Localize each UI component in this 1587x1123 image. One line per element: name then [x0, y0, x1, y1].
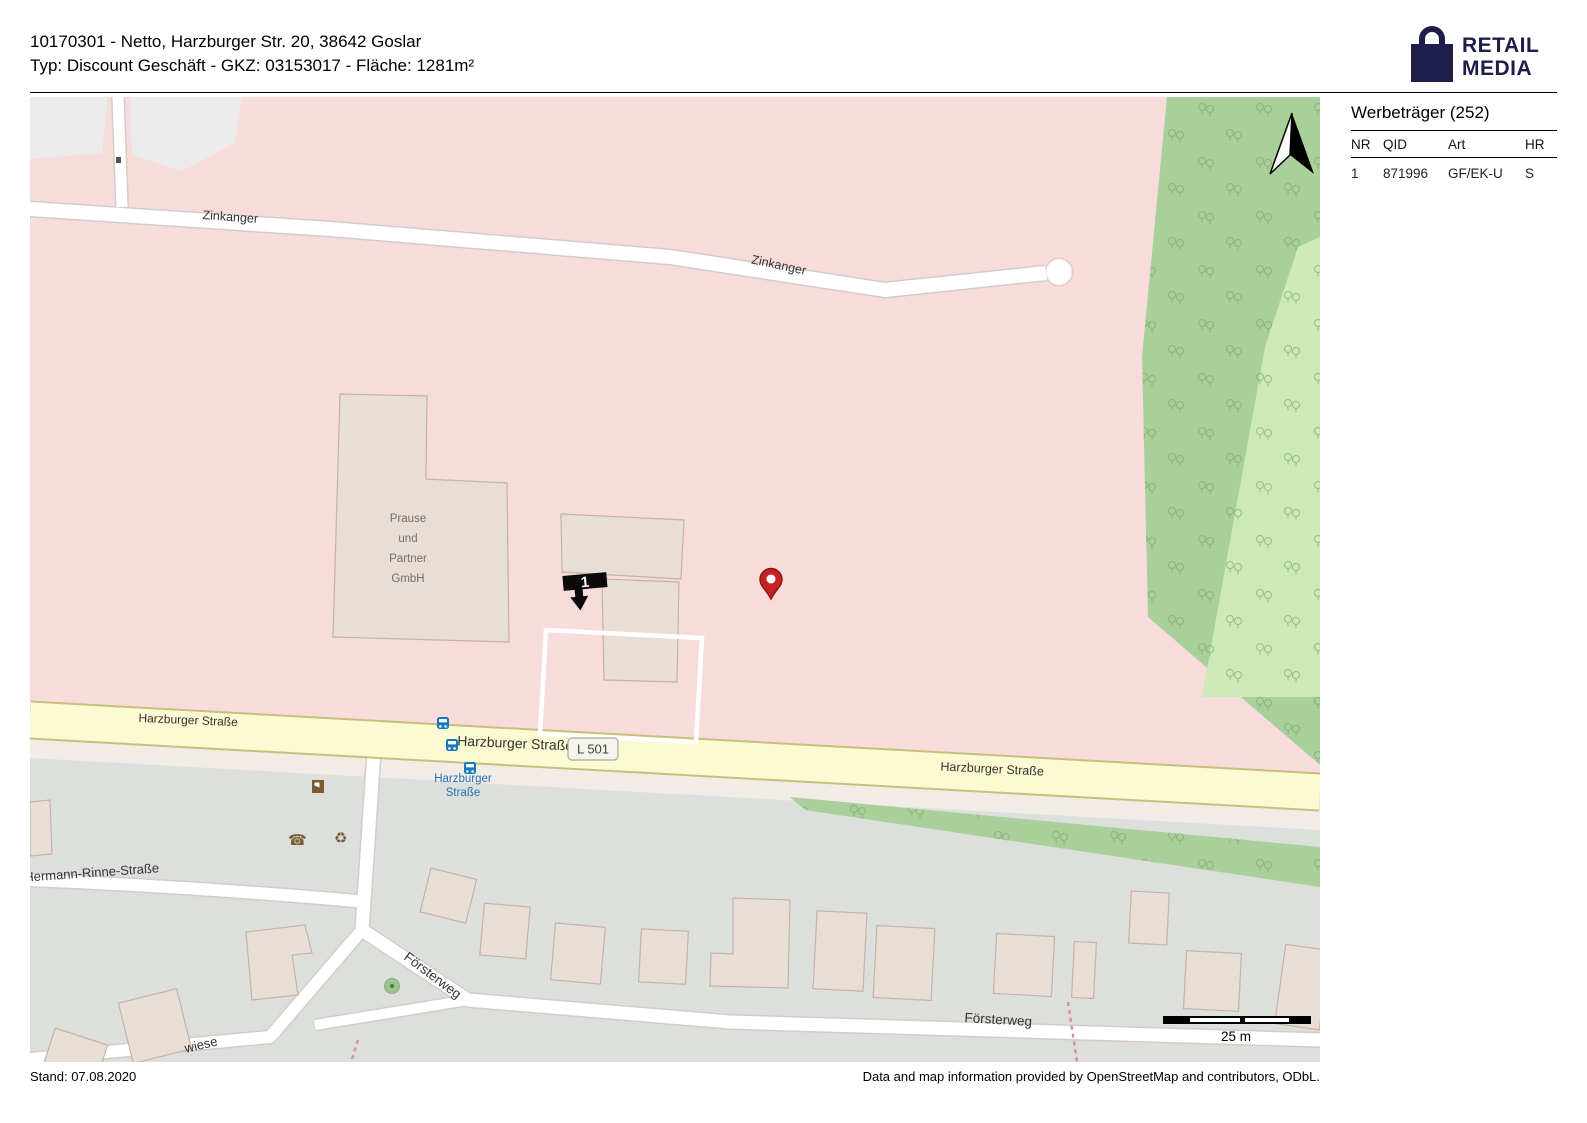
- shopping-bag-icon: [1408, 24, 1456, 89]
- werbetraeger-panel: Werbeträger (252) NR QID Art HR 1 871996…: [1351, 103, 1557, 181]
- map-canvas: Zinkanger Zinkanger Harzburger Straße Ha…: [30, 97, 1320, 1062]
- building: [639, 929, 689, 984]
- table-row: 1 871996 GF/EK-U S: [1351, 158, 1557, 181]
- svg-text:Straße: Straße: [446, 787, 481, 799]
- header-divider: [30, 92, 1557, 93]
- ticket-machine-icon: [312, 780, 324, 793]
- svg-text:und: und: [398, 533, 417, 545]
- cell-art: GF/EK-U: [1448, 166, 1525, 181]
- retail-media-logo: RETAIL MEDIA: [1408, 24, 1539, 89]
- turning-circle: [1047, 260, 1072, 285]
- svg-text:Partner: Partner: [389, 553, 427, 565]
- logo-wordmark: RETAIL MEDIA: [1462, 34, 1539, 80]
- tree-icon: [385, 979, 400, 994]
- col-nr: NR: [1351, 137, 1383, 152]
- cell-hr: S: [1525, 166, 1555, 181]
- svg-text:Harzburger: Harzburger: [434, 773, 492, 785]
- store-subtitle: Typ: Discount Geschäft - GKZ: 03153017 -…: [30, 54, 474, 78]
- grey-parcel-a: [30, 97, 108, 159]
- svg-text:Prause: Prause: [390, 513, 426, 525]
- svg-text:GmbH: GmbH: [391, 573, 424, 585]
- bus-stop-icon: [437, 717, 449, 729]
- building: [561, 514, 684, 579]
- store-title: 10170301 - Netto, Harzburger Str. 20, 38…: [30, 30, 474, 54]
- building: [813, 911, 867, 992]
- bus-stop-icon: [446, 739, 458, 751]
- telephone-icon: ☎: [288, 832, 307, 849]
- cell-nr: 1: [1351, 166, 1383, 181]
- svg-text:L 501: L 501: [577, 742, 609, 757]
- col-hr: HR: [1525, 137, 1555, 152]
- building: [873, 926, 935, 1001]
- table-header: NR QID Art HR: [1351, 131, 1557, 158]
- building: [480, 903, 530, 959]
- col-qid: QID: [1383, 137, 1448, 152]
- building: [1072, 941, 1097, 998]
- page-header: 10170301 - Netto, Harzburger Str. 20, 38…: [30, 30, 474, 78]
- building: [1184, 951, 1242, 1012]
- route-badge-l501: L 501: [568, 738, 618, 760]
- col-art: Art: [1448, 137, 1525, 152]
- cell-qid: 871996: [1383, 166, 1448, 181]
- panel-title: Werbeträger (252): [1351, 103, 1557, 131]
- building: [602, 579, 679, 682]
- gate-icon: [116, 157, 121, 163]
- building: [993, 934, 1054, 997]
- scale-label: 25 m: [1221, 1029, 1251, 1044]
- building: [30, 800, 52, 856]
- recycling-icon: ♻: [334, 830, 347, 847]
- footer-date: Stand: 07.08.2020: [30, 1069, 136, 1084]
- building: [551, 923, 606, 984]
- building: [1129, 891, 1170, 945]
- footer-attribution: Data and map information provided by Ope…: [620, 1069, 1320, 1084]
- report-page: { "header": { "line1": "10170301 - Netto…: [0, 0, 1587, 1123]
